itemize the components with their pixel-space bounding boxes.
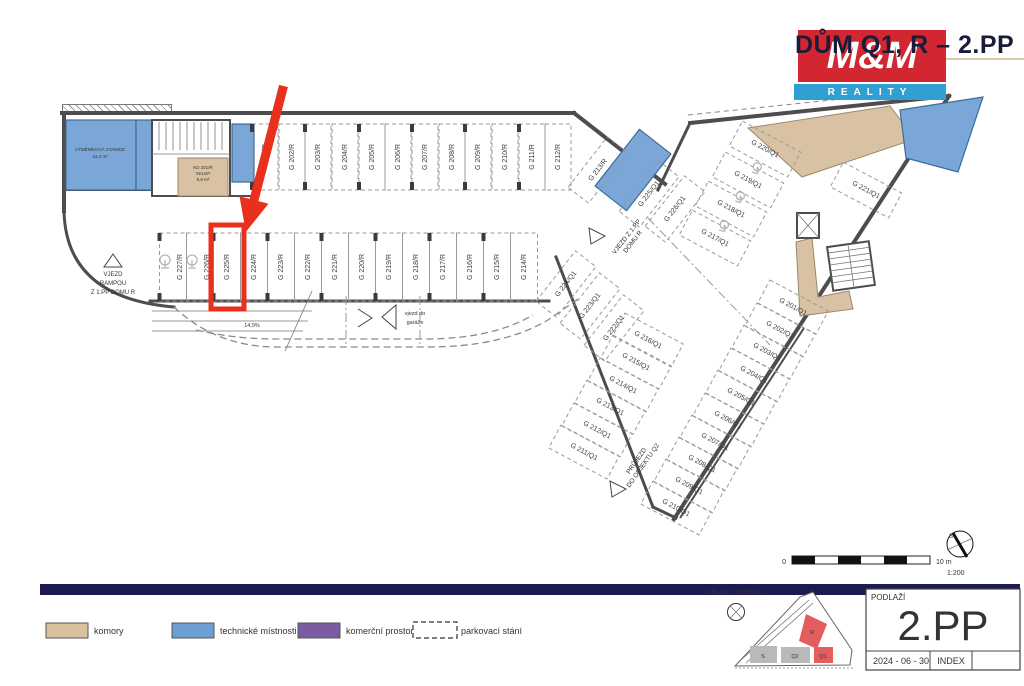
- parking-stall-G-221-Q1: G 221/Q1: [830, 162, 901, 218]
- page-title: DŮM Q1, R – 2.PP: [795, 31, 1014, 60]
- svg-text:G 223/Q1: G 223/Q1: [578, 292, 602, 320]
- svg-text:situace - schéma: situace - schéma: [708, 589, 761, 596]
- mm-reality-logo-bar: REALITY: [794, 84, 946, 100]
- parking-stall-G-202-R: G 202/R: [279, 124, 305, 190]
- parking-stall-G-210-R: G 210/R: [492, 124, 518, 190]
- svg-text:2.PP: 2.PP: [897, 602, 988, 649]
- svg-text:vjezd do: vjezd do: [405, 311, 426, 317]
- north-symbol: S: [947, 531, 973, 557]
- parking-stalls: G 201/RG 202/RG 203/RG 204/RG 205/RG 206…: [158, 121, 902, 535]
- rooms: [66, 97, 983, 316]
- parking-stall-G-206-R: G 206/R: [385, 124, 411, 190]
- svg-text:PODLAŽÍ: PODLAŽÍ: [871, 593, 906, 602]
- svg-text:G 202/R: G 202/R: [289, 144, 296, 170]
- parking-stall-G-220-R: G 220/R: [349, 233, 376, 301]
- scale-bar: 0 10 m S 1:200: [782, 531, 973, 577]
- parking-stall-G-204-R: G 204/R: [332, 124, 358, 190]
- parking-stall-G-212-R: G 212/R: [545, 124, 571, 190]
- parking-stall-G-217-R: G 217/R: [428, 233, 457, 301]
- parking-stall-G-218-R: G 218/R: [403, 233, 430, 301]
- wheelchair-icon: [734, 190, 746, 203]
- legend-swatch-komercni: [298, 623, 340, 638]
- room-technical-small: [232, 124, 254, 182]
- svg-text:G 218/Q1: G 218/Q1: [716, 199, 746, 219]
- parking-stall-G-221-R: G 221/R: [320, 233, 349, 301]
- legend: komory technické místnosti komerční pros…: [46, 622, 523, 638]
- room-komory-upper: [748, 106, 915, 177]
- svg-text:komory: komory: [94, 626, 124, 636]
- svg-text:G 216/Q1: G 216/Q1: [633, 330, 663, 350]
- svg-text:1:200: 1:200: [947, 570, 965, 577]
- svg-text:G 214/Q1: G 214/Q1: [608, 375, 638, 395]
- motorcycle-icon: [160, 255, 170, 268]
- floor-plan-svg: G 201/RG 202/RG 203/RG 204/RG 205/RG 206…: [0, 0, 1024, 686]
- svg-text:G 222/Q1: G 222/Q1: [602, 314, 626, 342]
- svg-text:garáže: garáže: [407, 320, 424, 326]
- vjezd-1pp-triangle: [589, 228, 605, 244]
- svg-text:INDEX: INDEX: [937, 656, 965, 666]
- svg-text:G 226/Q1: G 226/Q1: [663, 195, 687, 223]
- svg-text:2024 - 06 - 30: 2024 - 06 - 30: [873, 656, 929, 666]
- svg-text:G 221/Q1: G 221/Q1: [851, 180, 881, 200]
- svg-text:10 m: 10 m: [936, 559, 952, 566]
- svg-text:G 227/R: G 227/R: [177, 254, 184, 280]
- svg-text:G 221/R: G 221/R: [332, 254, 339, 280]
- parking-stall-G-223-R: G 223/R: [266, 233, 295, 301]
- parking-stall-G-216-R: G 216/R: [457, 233, 484, 301]
- svg-text:5,9 m²: 5,9 m²: [197, 177, 210, 182]
- svg-text:G 204/Q1: G 204/Q1: [739, 365, 769, 385]
- parking-stall-G-203-R: G 203/R: [303, 124, 331, 190]
- svg-text:G 203/Q1: G 203/Q1: [752, 342, 782, 362]
- svg-text:R: R: [810, 630, 814, 636]
- svg-text:G 225/R: G 225/R: [224, 254, 231, 280]
- svg-text:G 219/Q1: G 219/Q1: [733, 170, 763, 190]
- svg-text:G 223/R: G 223/R: [278, 254, 285, 280]
- svg-text:34,4 m²: 34,4 m²: [92, 154, 108, 159]
- vjezd-garaz-triangle: [382, 305, 396, 329]
- svg-text:G 202/Q1: G 202/Q1: [765, 320, 795, 340]
- svg-text:G 210/R: G 210/R: [502, 144, 509, 170]
- svg-text:Q1: Q1: [819, 654, 826, 660]
- parking-stall-G-207-R: G 207/R: [410, 124, 438, 190]
- svg-text:G 212/Q1: G 212/Q1: [582, 420, 612, 440]
- svg-text:G 214/R: G 214/R: [521, 254, 528, 280]
- svg-text:SKLEP: SKLEP: [196, 171, 211, 176]
- svg-text:G 204/R: G 204/R: [342, 144, 349, 170]
- svg-text:G 205/R: G 205/R: [369, 144, 376, 170]
- svg-text:G 215/R: G 215/R: [494, 254, 501, 280]
- svg-text:G 218/R: G 218/R: [413, 254, 420, 280]
- svg-text:G 224/R: G 224/R: [251, 254, 258, 280]
- room-technical-strip: [136, 120, 152, 190]
- svg-text:G 213/Q1: G 213/Q1: [595, 397, 625, 417]
- elevator: [797, 213, 819, 238]
- vjezd-rampou-triangle: [104, 254, 122, 267]
- svg-text:parkovací stání: parkovací stání: [461, 626, 523, 636]
- svg-text:VÝMĚNÍKOVÁ STANICE: VÝMĚNÍKOVÁ STANICE: [75, 145, 125, 152]
- svg-text:G 219/R: G 219/R: [386, 254, 393, 280]
- room-technical-ne: [900, 97, 983, 172]
- aisle-arrow: [358, 309, 372, 327]
- svg-text:G 211/Q1: G 211/Q1: [569, 442, 599, 462]
- svg-text:Q2: Q2: [791, 654, 798, 660]
- svg-text:G 203/R: G 203/R: [315, 144, 322, 170]
- svg-text:G 206/R: G 206/R: [395, 144, 402, 170]
- svg-text:G 208/R: G 208/R: [449, 144, 456, 170]
- svg-text:G 217/Q1: G 217/Q1: [700, 228, 730, 248]
- svg-text:KD 201/R: KD 201/R: [193, 165, 213, 170]
- svg-text:RAMPOU: RAMPOU: [100, 281, 126, 287]
- parking-stall-G-214-R: G 214/R: [511, 233, 538, 301]
- title-block: PODLAŽÍ 2.PP 2024 - 06 - 30 INDEX: [866, 589, 1020, 670]
- crossed-circle-icon: [728, 604, 745, 621]
- floor-plan-page: DŮM Q1, R – 2.PP M&M REALITY: [0, 0, 1024, 686]
- svg-text:G 212/R: G 212/R: [555, 144, 562, 170]
- prujezd-triangle: [610, 481, 626, 497]
- parking-stall-G-211-R: G 211/R: [517, 124, 545, 190]
- parking-stall-G-219-R: G 219/R: [374, 233, 403, 301]
- legend-swatch-komory: [46, 623, 88, 638]
- svg-text:G 207/R: G 207/R: [422, 144, 429, 170]
- parking-stall-G-227-R: G 227/R: [158, 233, 187, 301]
- svg-text:G 216/R: G 216/R: [467, 254, 474, 280]
- svg-text:technické místnosti: technické místnosti: [220, 626, 297, 636]
- svg-text:G 215/Q1: G 215/Q1: [621, 352, 651, 372]
- situace-schema: situace - schéma S Q2 Q1 R: [708, 589, 853, 668]
- parking-stall-G-215-R: G 215/R: [482, 233, 511, 301]
- parking-stall-G-222-R: G 222/R: [295, 233, 322, 301]
- parking-stall-G-205-R: G 205/R: [357, 124, 385, 190]
- room-technical-ats: [595, 129, 671, 210]
- svg-text:G 217/R: G 217/R: [440, 254, 447, 280]
- svg-text:S: S: [761, 654, 765, 660]
- staircase-right: [827, 241, 875, 290]
- svg-text:S: S: [949, 534, 953, 540]
- parking-stall-G-225-R: G 225/R: [212, 233, 241, 301]
- svg-text:G 211/R: G 211/R: [529, 144, 536, 170]
- legend-swatch-parkovaci: [413, 622, 457, 638]
- parking-stall-G-208-R: G 208/R: [439, 124, 465, 190]
- svg-text:14,9%: 14,9%: [244, 323, 260, 329]
- svg-text:G 220/R: G 220/R: [359, 254, 366, 280]
- svg-text:G 224/Q1: G 224/Q1: [554, 270, 578, 298]
- wheelchair-icon: [751, 161, 763, 174]
- svg-text:komerční prostory: komerční prostory: [346, 626, 419, 636]
- svg-text:Z 1.PP DOMU R: Z 1.PP DOMU R: [91, 290, 136, 296]
- parking-stall-G-209-R: G 209/R: [463, 124, 491, 190]
- svg-text:VJEZD: VJEZD: [103, 272, 123, 278]
- motorcycle-icon: [187, 255, 197, 268]
- svg-text:G 209/R: G 209/R: [475, 144, 482, 170]
- legend-swatch-technicke: [172, 623, 214, 638]
- svg-text:0: 0: [782, 559, 786, 566]
- svg-text:G 222/R: G 222/R: [305, 254, 312, 280]
